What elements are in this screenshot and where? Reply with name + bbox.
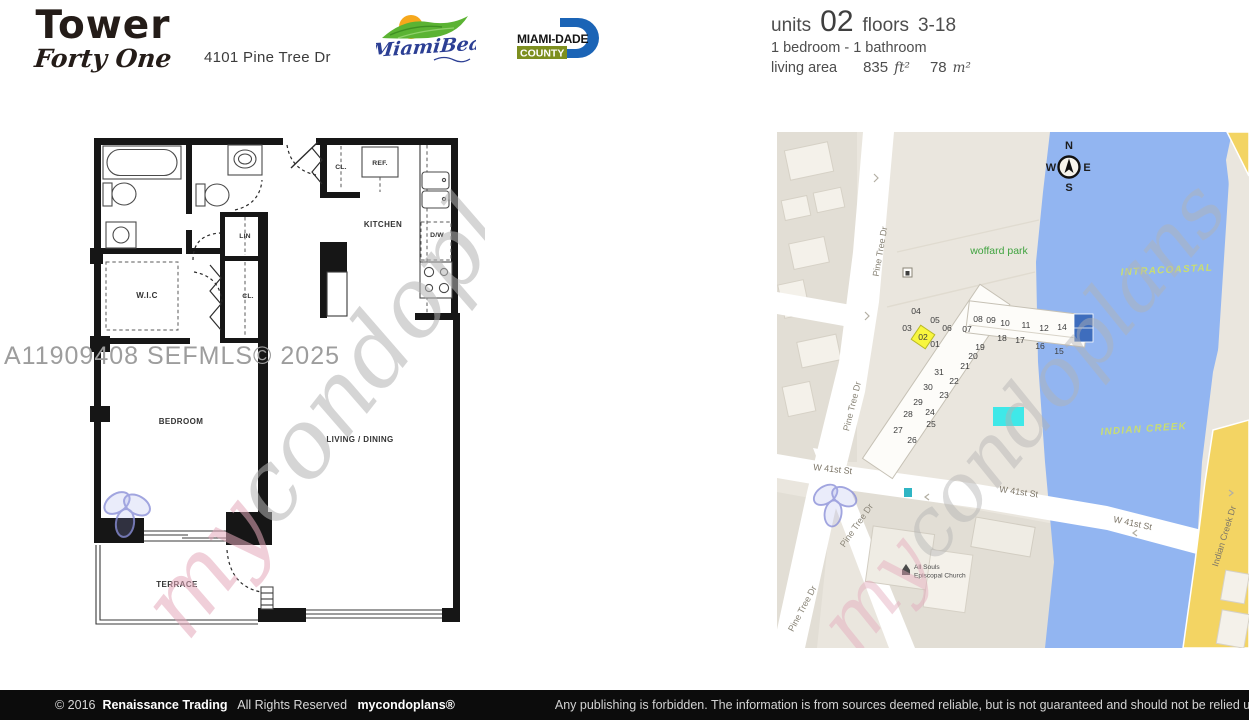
condo-plan-sheet: Tower Forty One 4101 Pine Tree Dr MiamiB…: [0, 0, 1249, 720]
svg-text:N: N: [1065, 140, 1073, 152]
map-unit-number: 07: [962, 324, 972, 334]
map-unit-number: 11: [1022, 320, 1031, 330]
map-unit-number: 31: [934, 367, 944, 377]
area-sqm-value: 78: [930, 59, 947, 76]
footer-copyright: © 2016 Renaissance Trading All Rights Re…: [55, 698, 455, 712]
svg-text:Episcopal Church: Episcopal Church: [914, 573, 966, 580]
svg-text:All Souls: All Souls: [914, 564, 940, 571]
location-map: 0405030602010708091011121418171615192021…: [777, 132, 1249, 648]
miami-dade-text: MIAMI-DADE: [517, 32, 589, 46]
area-sqm-unit: m²: [953, 60, 971, 76]
floor-plan-fixtures: [103, 145, 452, 336]
building-subname: Forty One: [27, 46, 180, 72]
living-dining-label: LIVING / DINING: [326, 435, 393, 444]
floor-plan: BEDROOM LIVING / DINING TERRACE KITCHEN …: [90, 130, 470, 640]
terrace-label: TERRACE: [156, 580, 198, 589]
building-name: Tower: [28, 6, 178, 46]
park-label: woffard park: [969, 245, 1028, 257]
closet-hall-label: CL.: [242, 293, 254, 300]
map-unit-number: 14: [1057, 322, 1067, 332]
poi-icon: [903, 268, 912, 277]
map-unit-number: 01: [930, 339, 940, 349]
map-unit-number: 18: [997, 333, 1007, 343]
map-unit-number: 29: [913, 397, 923, 407]
wic-label: W.I.C: [136, 291, 158, 300]
svg-text:S: S: [1065, 182, 1072, 194]
dishwasher-box: [421, 222, 451, 260]
mls-watermark: A11909408 SEFMLS© 2025: [4, 342, 340, 371]
lin-label: LIN: [239, 233, 251, 240]
bedroom-label: BEDROOM: [159, 417, 204, 426]
map-unit-number: 04: [911, 306, 921, 316]
map-unit-number: 09: [986, 315, 996, 325]
map-unit-number: 21: [960, 361, 970, 371]
refrigerator-label: REF.: [372, 160, 388, 167]
tower-forty-one-logo: Tower Forty One: [28, 6, 178, 72]
map-unit-number: 25: [926, 419, 936, 429]
map-unit-number: 05: [930, 315, 940, 325]
area-sqft-unit: ft²: [894, 60, 910, 76]
unit-number: 02: [820, 5, 853, 39]
map-unit-number: 28: [903, 409, 913, 419]
units-label: units: [771, 15, 811, 37]
county-text: COUNTY: [520, 48, 564, 60]
map-unit-number: 22: [949, 376, 959, 386]
footer-brand: mycondoplans®: [357, 698, 454, 712]
map-unit-number: 12: [1039, 323, 1049, 333]
miami-dade-county-logo: MIAMI-DADE COUNTY: [516, 16, 604, 62]
pool: [993, 407, 1024, 426]
living-area-label: living area: [771, 60, 837, 76]
area-sqft-value: 835: [863, 59, 888, 76]
footer-bar: © 2016 Renaissance Trading All Rights Re…: [0, 690, 1249, 720]
unit-info: units 02 floors 3-18 1 bedroom - 1 bathr…: [771, 5, 1071, 76]
map-unit-number: 23: [939, 390, 949, 400]
map-unit-number: 10: [1000, 318, 1010, 328]
closet-entry-label: CL.: [335, 164, 347, 171]
map-unit-number: 17: [1015, 335, 1025, 345]
map-unit-number: 08: [973, 314, 983, 324]
map-unit-number-highlighted: 02: [918, 332, 928, 342]
map-unit-number: 24: [925, 407, 935, 417]
floor-plan-walls: [90, 138, 460, 622]
map-unit-number: 06: [942, 323, 952, 333]
footer-disclaimer: Any publishing is forbidden. The informa…: [555, 698, 1249, 712]
floors-label: floors: [863, 15, 909, 37]
bed-bath: 1 bedroom - 1 bathroom: [771, 40, 1071, 56]
svg-text:E: E: [1083, 162, 1090, 174]
map-unit-number: 20: [968, 351, 978, 361]
map-unit-number: 30: [923, 382, 933, 392]
kitchen-label: KITCHEN: [364, 220, 402, 229]
svg-text:W: W: [1046, 162, 1057, 174]
miami-beach-logo: MiamiBeach: [376, 8, 476, 66]
floors-range: 3-18: [918, 15, 956, 37]
map-unit-number: 26: [907, 435, 917, 445]
map-unit-number: 03: [902, 323, 912, 333]
building-address: 4101 Pine Tree Dr: [204, 49, 331, 66]
stove: [420, 262, 452, 298]
butterfly-logo-icon: [805, 478, 863, 534]
footer-company: Renaissance Trading: [102, 698, 227, 712]
floor-plan-labels: BEDROOM LIVING / DINING TERRACE KITCHEN …: [136, 160, 444, 589]
map-unit-number: 16: [1035, 341, 1045, 351]
transit-icon: [904, 488, 912, 497]
dishwasher-label: D/W: [430, 232, 444, 239]
map-unit-number: 27: [893, 425, 903, 435]
toilet: [103, 183, 112, 206]
toilet: [196, 184, 205, 206]
map-unit-number: 15: [1054, 346, 1064, 356]
butterfly-logo-icon: [95, 485, 157, 545]
